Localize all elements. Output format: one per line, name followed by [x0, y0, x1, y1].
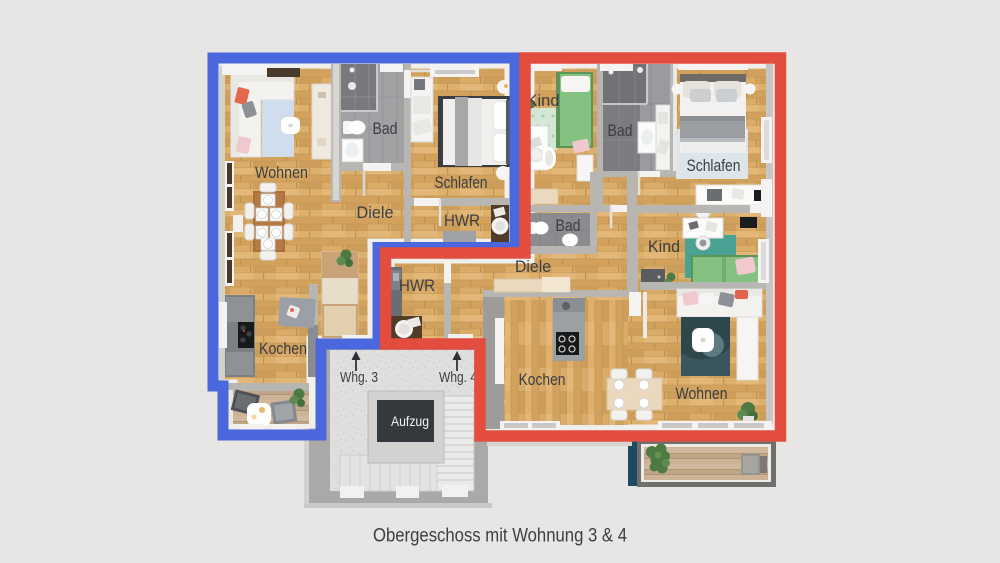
svg-text:Schlafen: Schlafen: [435, 174, 488, 192]
svg-text:Aufzug: Aufzug: [391, 414, 429, 429]
svg-text:Kind: Kind: [527, 92, 560, 110]
svg-text:Diele: Diele: [515, 258, 551, 276]
svg-text:Wohnen: Wohnen: [255, 164, 308, 182]
svg-text:HWR: HWR: [399, 277, 435, 295]
svg-text:Kind: Kind: [648, 238, 680, 256]
svg-text:HWR: HWR: [444, 212, 480, 230]
svg-text:Diele: Diele: [357, 204, 394, 222]
svg-text:Schlafen: Schlafen: [687, 157, 741, 175]
svg-text:Whg. 3: Whg. 3: [340, 370, 378, 386]
svg-text:Whg. 4: Whg. 4: [439, 370, 477, 386]
svg-text:Kochen: Kochen: [259, 340, 307, 358]
svg-text:Bad: Bad: [373, 120, 398, 138]
svg-text:Obergeschoss mit Wohnung 3 & 4: Obergeschoss mit Wohnung 3 & 4: [373, 525, 627, 547]
svg-text:Kochen: Kochen: [519, 371, 566, 389]
svg-text:Bad: Bad: [556, 217, 581, 235]
svg-text:Wohnen: Wohnen: [676, 385, 728, 403]
svg-text:Bad: Bad: [608, 122, 633, 140]
